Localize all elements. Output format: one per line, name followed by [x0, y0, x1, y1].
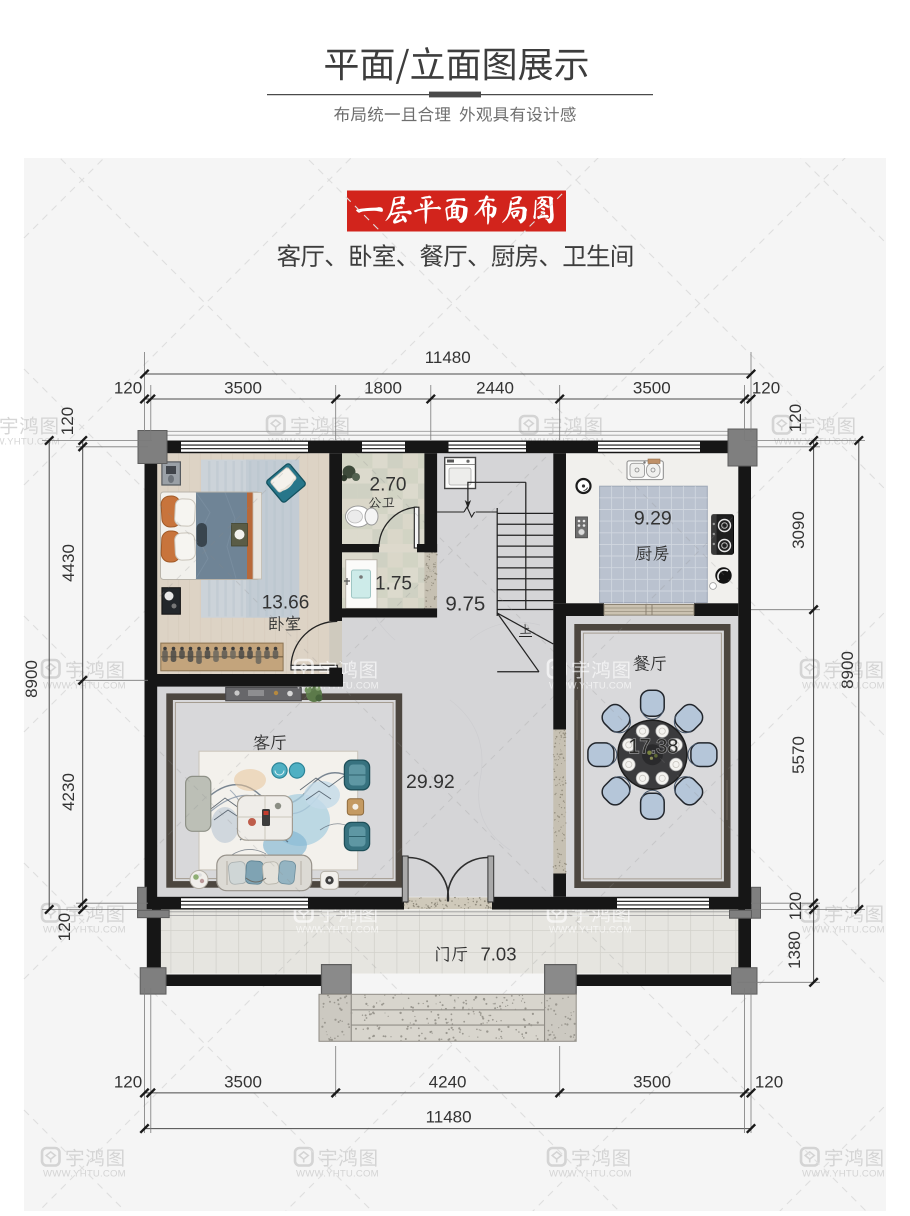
svg-text:2.70: 2.70	[370, 475, 407, 496]
svg-text:1800: 1800	[364, 379, 402, 398]
svg-text:WWW.YHTU.COM: WWW.YHTU.COM	[802, 1169, 885, 1180]
svg-text:120: 120	[786, 404, 805, 432]
svg-text:120: 120	[755, 1073, 783, 1092]
svg-text:9.75: 9.75	[445, 593, 485, 616]
svg-text:3500: 3500	[633, 379, 671, 398]
svg-text:120: 120	[114, 1073, 142, 1092]
svg-text:WWW.YHTU.COM: WWW.YHTU.COM	[802, 925, 885, 936]
svg-text:4230: 4230	[59, 773, 78, 811]
svg-text:WWW.YHTU.COM: WWW.YHTU.COM	[296, 1169, 379, 1180]
svg-text:120: 120	[114, 379, 142, 398]
svg-text:13.66: 13.66	[262, 593, 310, 614]
svg-text:120: 120	[58, 407, 77, 435]
svg-text:120: 120	[55, 913, 74, 941]
svg-text:3090: 3090	[789, 511, 808, 549]
svg-text:17.38: 17.38	[628, 736, 678, 758]
svg-text:8900: 8900	[838, 651, 857, 689]
svg-text:WWW.YHTU.COM: WWW.YHTU.COM	[296, 925, 379, 936]
svg-text:7.03: 7.03	[480, 944, 516, 965]
svg-text:WWW.YHTU.COM: WWW.YHTU.COM	[43, 1169, 126, 1180]
svg-text:3500: 3500	[633, 1073, 671, 1092]
svg-text:WWW.YHTU.COM: WWW.YHTU.COM	[549, 925, 632, 936]
svg-text:11480: 11480	[426, 1108, 472, 1127]
svg-text:3500: 3500	[224, 1073, 262, 1092]
svg-text:120: 120	[786, 892, 805, 920]
svg-text:29.92: 29.92	[406, 771, 455, 793]
svg-text:4240: 4240	[429, 1073, 467, 1092]
svg-text:WWW.YHTU.COM: WWW.YHTU.COM	[43, 681, 126, 692]
svg-text:5570: 5570	[789, 736, 808, 774]
svg-text:4430: 4430	[59, 544, 78, 582]
svg-text:WWW.YHTU.COM: WWW.YHTU.COM	[549, 1169, 632, 1180]
svg-text:120: 120	[752, 379, 780, 398]
svg-text:1380: 1380	[785, 931, 804, 969]
svg-text:9.29: 9.29	[634, 508, 672, 530]
svg-text:2440: 2440	[476, 379, 514, 398]
svg-text:1.75: 1.75	[375, 574, 412, 595]
svg-text:11480: 11480	[425, 348, 471, 367]
svg-text:8900: 8900	[22, 660, 41, 698]
svg-text:3500: 3500	[224, 379, 262, 398]
